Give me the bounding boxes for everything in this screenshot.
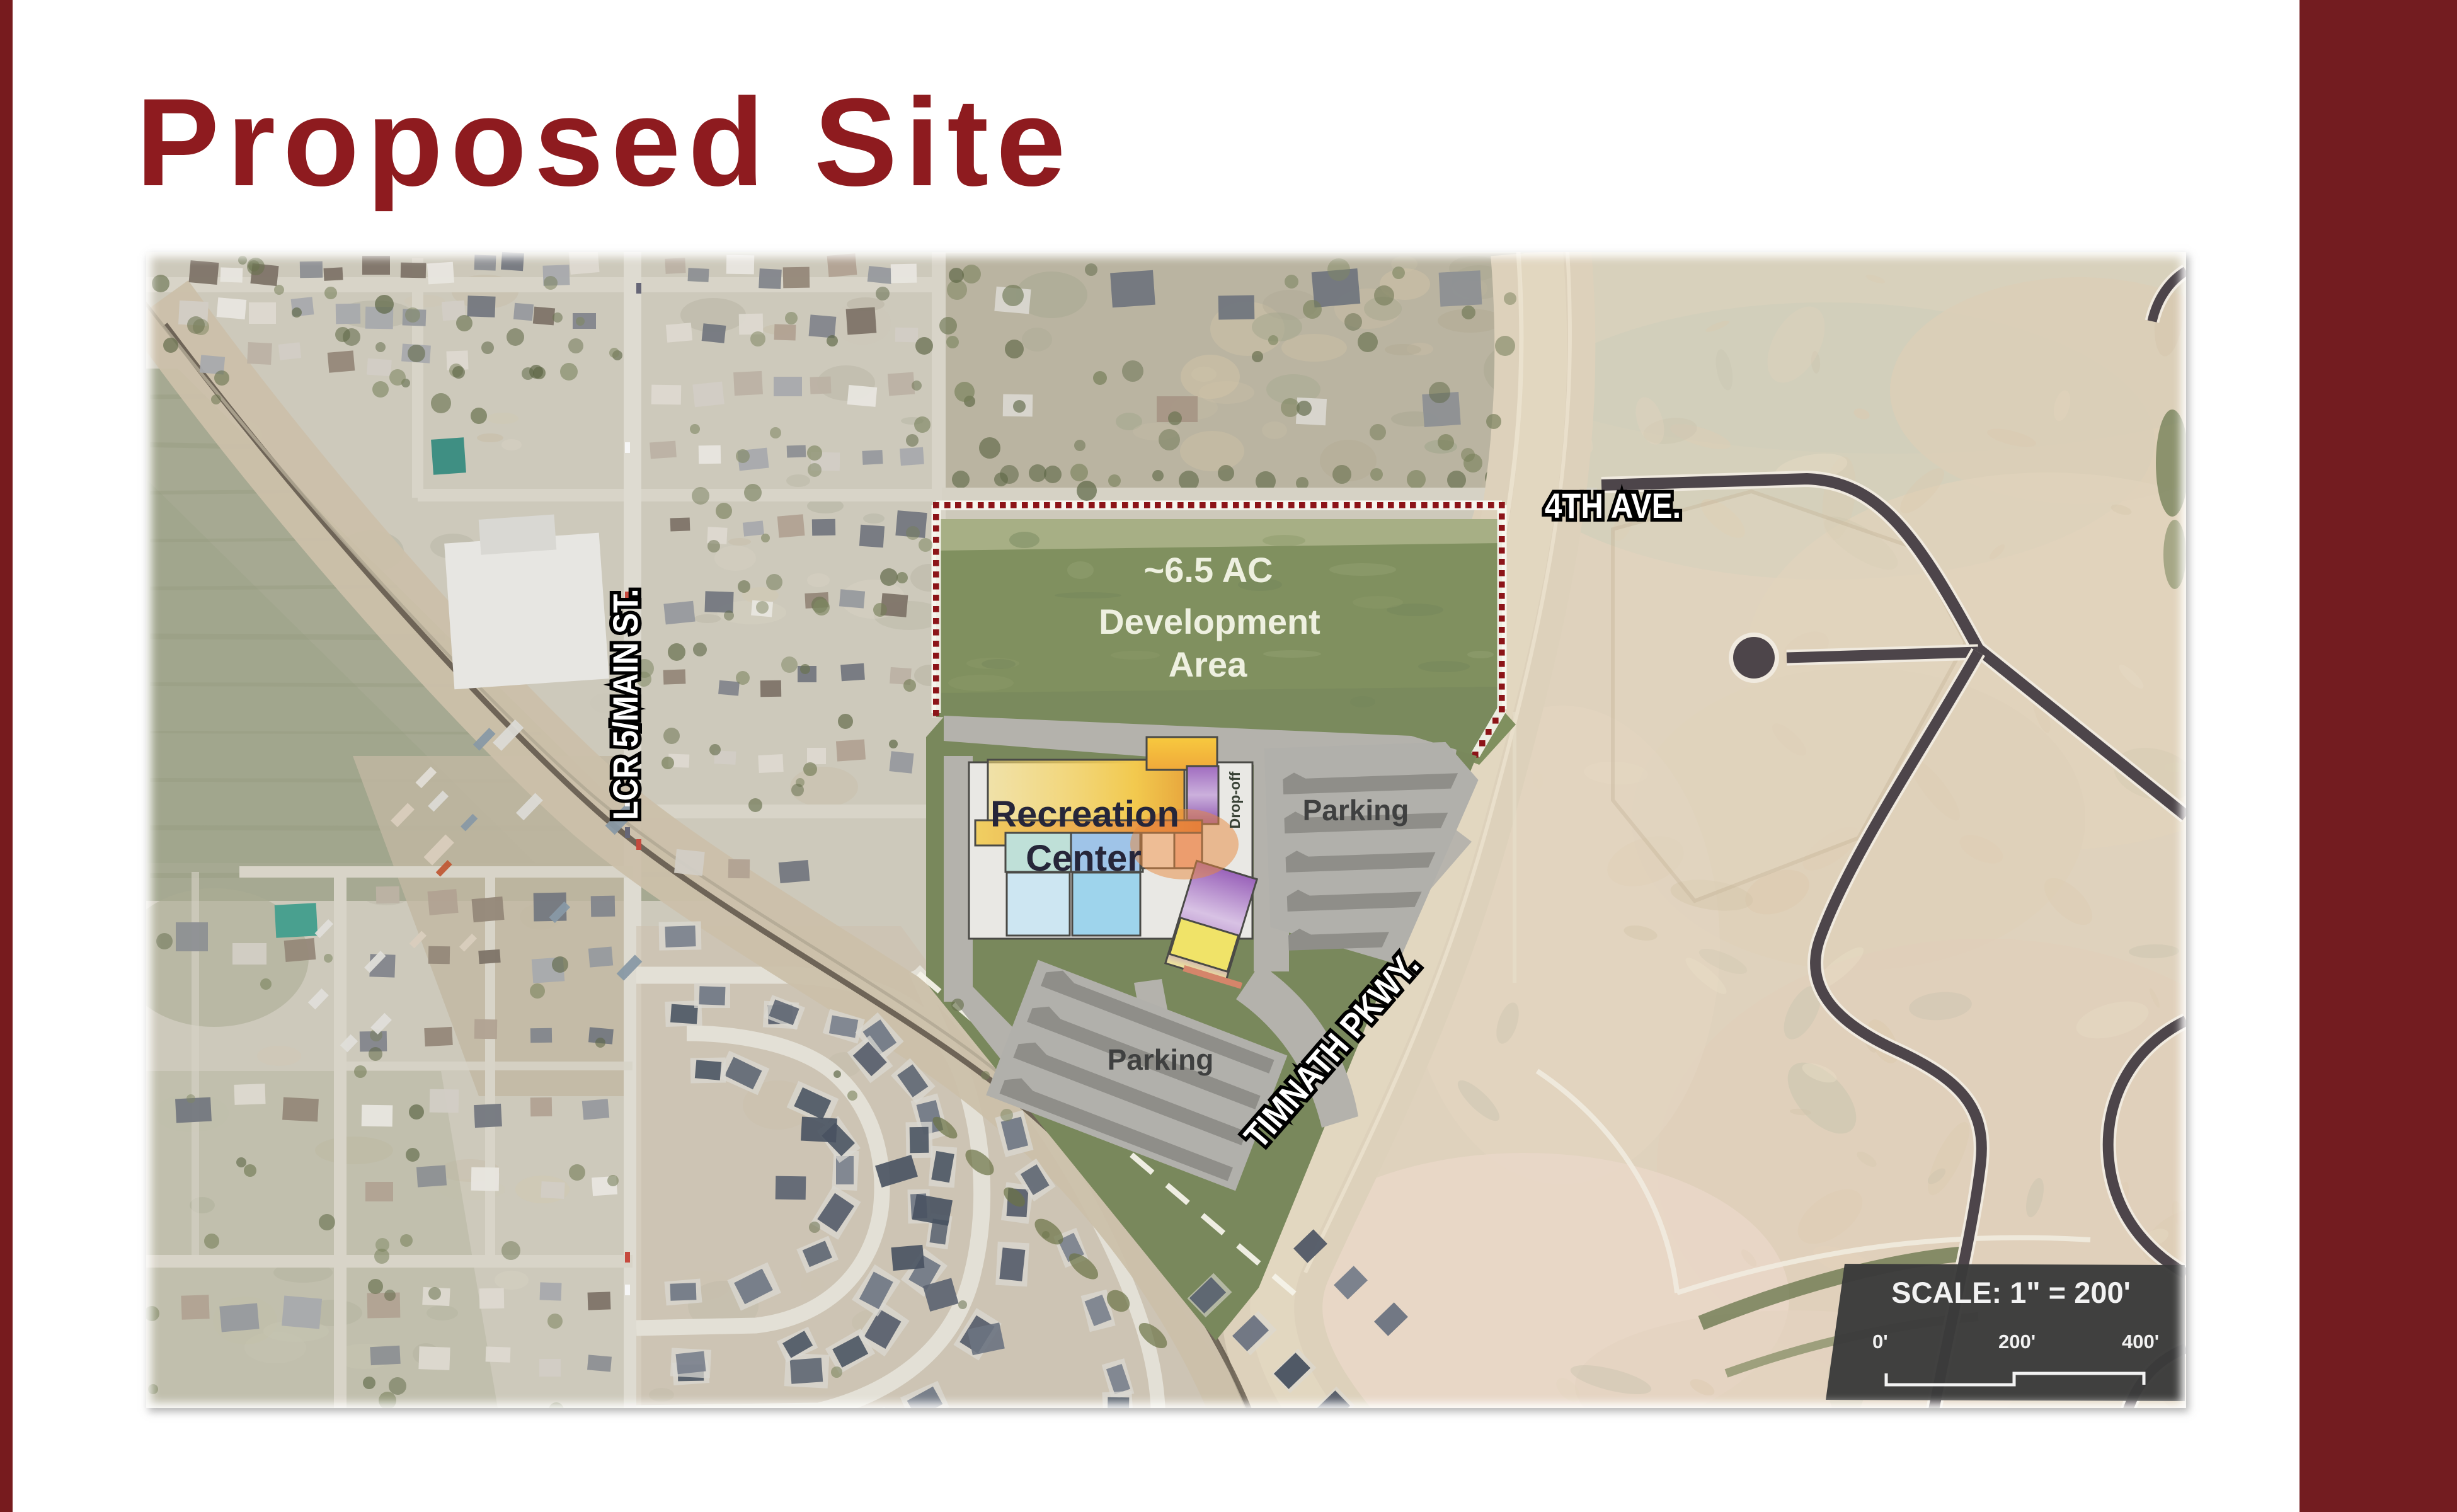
svg-text:LCR 5/MAIN ST.: LCR 5/MAIN ST.: [606, 589, 646, 820]
svg-text:TIMNATH PKWY.: TIMNATH PKWY.: [1237, 946, 1427, 1156]
svg-text:400': 400': [2122, 1331, 2159, 1353]
svg-text:Parking: Parking: [1303, 794, 1409, 827]
svg-text:Center: Center: [1026, 838, 1142, 879]
svg-text:SCALE: 1" = 200': SCALE: 1" = 200': [1891, 1276, 2131, 1309]
svg-text:Parking: Parking: [1108, 1043, 1214, 1076]
svg-text:Development: Development: [1099, 602, 1320, 641]
svg-text:200': 200': [1998, 1331, 2036, 1353]
svg-text:Area: Area: [1169, 644, 1247, 684]
svg-text:Drop-off: Drop-off: [1227, 771, 1243, 828]
svg-text:Recreation: Recreation: [990, 794, 1179, 835]
svg-text:4TH AVE.: 4TH AVE.: [1545, 486, 1681, 526]
svg-text:0': 0': [1872, 1331, 1888, 1353]
svg-text:~6.5 AC: ~6.5 AC: [1144, 550, 1273, 590]
